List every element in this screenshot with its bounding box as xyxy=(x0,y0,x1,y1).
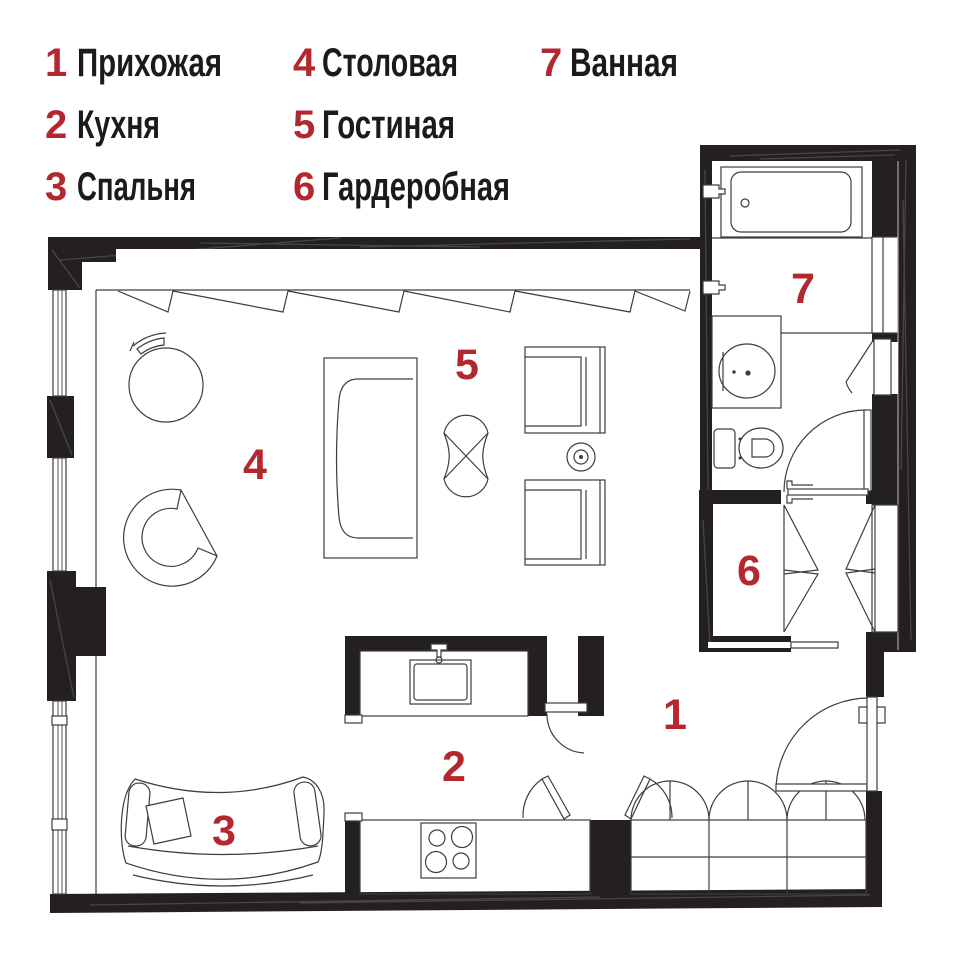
svg-text:6: 6 xyxy=(293,165,315,209)
svg-text:5: 5 xyxy=(293,103,315,147)
svg-text:4: 4 xyxy=(243,441,267,489)
svg-text:Спальня: Спальня xyxy=(77,165,196,209)
svg-text:Гостиная: Гостиная xyxy=(322,103,455,147)
svg-text:4: 4 xyxy=(293,41,316,85)
svg-text:5: 5 xyxy=(455,341,479,389)
svg-text:Гардеробная: Гардеробная xyxy=(322,165,510,209)
svg-text:2: 2 xyxy=(45,103,67,147)
svg-text:Кухня: Кухня xyxy=(77,103,160,147)
svg-text:2: 2 xyxy=(442,743,466,791)
svg-text:7: 7 xyxy=(540,41,562,85)
svg-text:1: 1 xyxy=(45,41,67,85)
svg-text:1: 1 xyxy=(663,691,687,739)
svg-text:7: 7 xyxy=(791,265,815,313)
svg-text:3: 3 xyxy=(212,807,236,855)
svg-text:Ванная: Ванная xyxy=(570,41,678,85)
svg-text:Прихожая: Прихожая xyxy=(77,41,222,85)
svg-text:6: 6 xyxy=(737,547,761,595)
svg-text:3: 3 xyxy=(45,165,67,209)
svg-text:Столовая: Столовая xyxy=(322,41,458,85)
